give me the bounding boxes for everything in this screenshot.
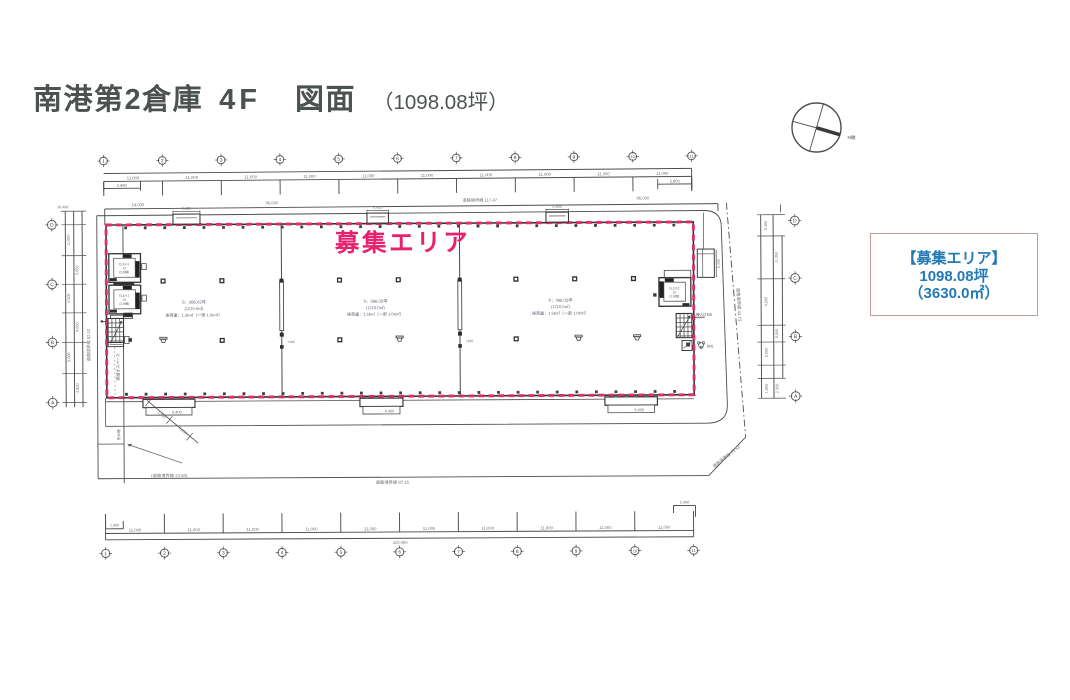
svg-text:5,150: 5,150 [178, 426, 188, 435]
svg-text:S：366.02坪: S：366.02坪 [182, 298, 206, 305]
svg-text:1,400: 1,400 [110, 523, 120, 527]
svg-text:11,000: 11,000 [188, 527, 201, 532]
svg-text:床荷重：1.5t/㎡（一部 1.0t/㎡）: 床荷重：1.5t/㎡（一部 1.0t/㎡） [347, 310, 404, 316]
svg-text:+100: +100 [287, 340, 295, 344]
svg-text:1: 1 [104, 551, 107, 557]
svg-text:11,000: 11,000 [129, 527, 142, 532]
svg-text:5,400: 5,400 [373, 206, 383, 210]
svg-text:6,400: 6,400 [634, 408, 644, 412]
svg-text:S：366.02坪: S：366.02坪 [363, 298, 387, 305]
svg-text:11,000: 11,000 [599, 525, 612, 530]
svg-text:6: 6 [398, 550, 401, 556]
svg-text:5,000: 5,000 [67, 352, 71, 362]
svg-text:5,800: 5,800 [670, 178, 681, 183]
svg-text:11,000: 11,000 [303, 174, 316, 179]
svg-text:床荷重：1.5t/㎡（一部 1.0t/㎡）: 床荷重：1.5t/㎡（一部 1.0t/㎡） [166, 311, 223, 317]
svg-text:6,400: 6,400 [172, 411, 182, 415]
svg-text:道路境界線 43.73: 道路境界線 43.73 [734, 288, 743, 322]
svg-text:11,000: 11,000 [540, 525, 553, 530]
svg-text:3: 3 [220, 158, 223, 164]
svg-text:14,000: 14,000 [131, 202, 145, 207]
svg-text:道路境界線 73.52: 道路境界線 73.52 [711, 443, 742, 470]
svg-text:9: 9 [575, 549, 578, 555]
svg-text:(1210.0㎡): (1210.0㎡) [551, 303, 571, 309]
svg-text:10: 10 [633, 548, 638, 553]
svg-text:3: 3 [222, 550, 225, 556]
svg-text:11,050: 11,050 [775, 252, 779, 263]
svg-text:4,500: 4,500 [67, 293, 71, 303]
svg-text:11,000: 11,000 [538, 172, 551, 177]
svg-text:道路境界線 117.47: 道路境界線 117.47 [463, 196, 498, 203]
svg-text:8: 8 [516, 549, 519, 555]
svg-text:11,000: 11,000 [482, 526, 495, 531]
svg-text:6: 6 [396, 156, 399, 162]
svg-text:2: 2 [163, 551, 166, 557]
svg-text:道路境界線 87.15: 道路境界線 87.15 [376, 479, 410, 486]
svg-text:1,800: 1,800 [765, 384, 769, 394]
svg-text:110,000: 110,000 [393, 540, 409, 545]
svg-text:(2.0t積): (2.0t積) [119, 269, 129, 274]
svg-text:11,000: 11,000 [423, 526, 436, 531]
svg-text:2,400: 2,400 [680, 500, 690, 504]
svg-text:2: 2 [161, 158, 164, 164]
svg-text:96,000: 96,000 [636, 195, 650, 200]
svg-text:(2.0t積): (2.0t積) [669, 293, 679, 298]
svg-text:N磁: N磁 [848, 134, 856, 141]
svg-text:11,000: 11,000 [244, 174, 257, 179]
svg-text:床荷重：1.5t/㎡（一部 1.0t/㎡）: 床荷重：1.5t/㎡（一部 1.0t/㎡） [532, 309, 589, 315]
svg-text:2,980: 2,980 [117, 183, 128, 188]
svg-text:5: 5 [337, 157, 340, 163]
svg-text:11,000: 11,000 [597, 171, 610, 176]
svg-text:C: C [793, 276, 797, 282]
svg-text:6,400: 6,400 [385, 409, 395, 413]
svg-text:11,000: 11,000 [656, 171, 669, 176]
svg-text:受水槽: 受水槽 [116, 429, 121, 440]
svg-text:11,000: 11,000 [305, 526, 318, 531]
svg-text:(2.0t積): (2.0t積) [119, 301, 129, 306]
svg-text:7: 7 [455, 156, 458, 162]
svg-text:道路境界線 92.02: 道路境界線 92.02 [85, 328, 92, 361]
svg-text:4,500: 4,500 [764, 297, 768, 307]
svg-text:D: D [50, 223, 54, 229]
svg-text:(1210.0㎡): (1210.0㎡) [184, 305, 204, 311]
svg-text:11,000: 11,000 [658, 525, 671, 530]
svg-text:4: 4 [279, 157, 282, 163]
svg-text:11,000: 11,000 [364, 526, 377, 531]
svg-text:5,650: 5,650 [75, 265, 79, 275]
svg-text:11,050: 11,050 [67, 235, 71, 246]
svg-text:D: D [793, 218, 797, 224]
svg-text:11,000: 11,000 [186, 175, 199, 180]
svg-text:96,000: 96,000 [265, 200, 279, 205]
svg-text:11,000: 11,000 [127, 175, 140, 180]
svg-text:8,460: 8,460 [764, 221, 768, 231]
svg-text:9,000: 9,000 [76, 322, 80, 332]
svg-text:搬入口100: 搬入口100 [696, 312, 712, 317]
svg-text:9,000: 9,000 [775, 329, 779, 339]
svg-text:募集エリア: 募集エリア [334, 228, 471, 258]
svg-text:36,400: 36,400 [57, 205, 68, 209]
svg-text:11,000: 11,000 [246, 527, 259, 532]
svg-text:5,400: 5,400 [182, 207, 192, 211]
svg-text:荷捌きスペース: 荷捌きスペース [114, 353, 120, 381]
svg-text:11,000: 11,000 [421, 173, 434, 178]
svg-text:5,400: 5,400 [552, 205, 562, 209]
svg-text:5: 5 [340, 550, 343, 556]
svg-text:9: 9 [573, 155, 576, 161]
svg-text:4: 4 [281, 550, 284, 556]
svg-text:5,400: 5,400 [717, 259, 721, 268]
svg-text:S：366.02坪: S：366.02坪 [548, 297, 572, 304]
svg-text:1: 1 [102, 159, 105, 165]
svg-text:C: C [50, 282, 54, 288]
svg-text:4,800: 4,800 [76, 383, 80, 393]
svg-text:5,000: 5,000 [765, 348, 769, 358]
svg-text:2,350: 2,350 [775, 384, 779, 394]
svg-text:11,000: 11,000 [362, 173, 375, 178]
svg-text:11,000: 11,000 [480, 172, 493, 177]
svg-text:7: 7 [457, 549, 460, 555]
svg-text:(1210.0㎡): (1210.0㎡) [366, 304, 386, 310]
svg-text:植栽: 植栽 [707, 343, 714, 348]
svg-text:8: 8 [514, 155, 517, 161]
svg-text:+100: +100 [466, 339, 474, 343]
